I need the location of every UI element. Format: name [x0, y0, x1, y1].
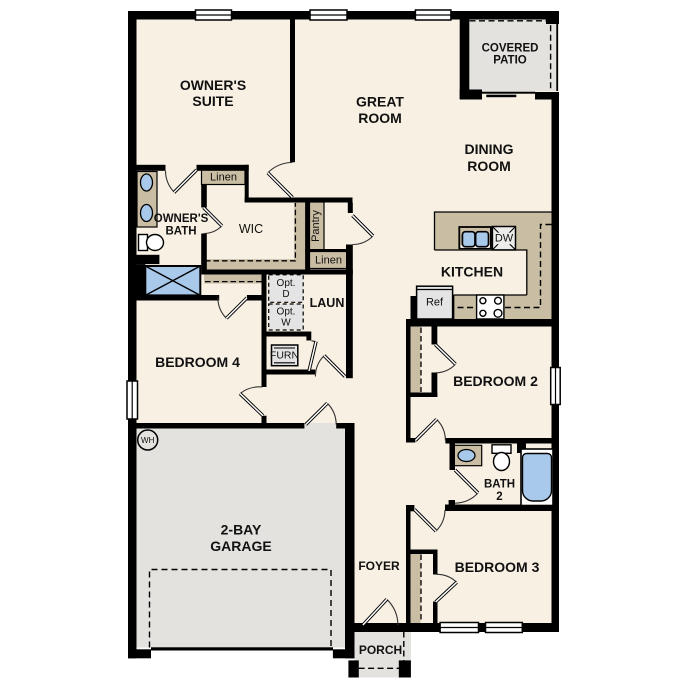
svg-text:FURN: FURN — [270, 350, 299, 362]
svg-text:D: D — [282, 289, 289, 300]
svg-text:WH: WH — [141, 436, 155, 445]
svg-text:2: 2 — [496, 491, 502, 503]
svg-text:Opt.: Opt. — [277, 307, 296, 318]
svg-text:Linen: Linen — [315, 255, 342, 267]
svg-text:FOYER: FOYER — [358, 559, 400, 573]
svg-text:Ref: Ref — [426, 297, 444, 309]
svg-text:SUITE: SUITE — [192, 93, 233, 109]
svg-text:COVERED: COVERED — [482, 43, 539, 55]
svg-text:PATIO: PATIO — [493, 55, 526, 67]
svg-text:Pantry: Pantry — [310, 210, 322, 242]
svg-text:BEDROOM 4: BEDROOM 4 — [155, 354, 240, 370]
svg-text:BATH: BATH — [165, 226, 196, 238]
svg-text:PORCH: PORCH — [359, 643, 402, 657]
svg-text:W: W — [281, 318, 291, 329]
svg-text:GREAT: GREAT — [356, 94, 404, 110]
svg-text:2-BAY: 2-BAY — [221, 522, 262, 538]
svg-text:BATH: BATH — [484, 479, 515, 491]
svg-text:ROOM: ROOM — [467, 158, 511, 174]
svg-text:GARAGE: GARAGE — [210, 538, 271, 554]
svg-text:Opt.: Opt. — [277, 278, 296, 289]
svg-text:Linen: Linen — [210, 172, 237, 184]
svg-text:KITCHEN: KITCHEN — [441, 264, 503, 280]
svg-text:ROOM: ROOM — [358, 110, 402, 126]
svg-text:BEDROOM 2: BEDROOM 2 — [453, 373, 538, 389]
svg-text:OWNER'S: OWNER'S — [180, 77, 246, 93]
svg-text:DINING: DINING — [465, 141, 514, 157]
svg-text:BEDROOM 3: BEDROOM 3 — [455, 559, 540, 575]
svg-text:LAUN: LAUN — [310, 296, 345, 310]
svg-text:DW: DW — [495, 233, 514, 245]
svg-text:WIC: WIC — [239, 222, 263, 236]
svg-text:OWNER'S: OWNER'S — [154, 213, 209, 225]
